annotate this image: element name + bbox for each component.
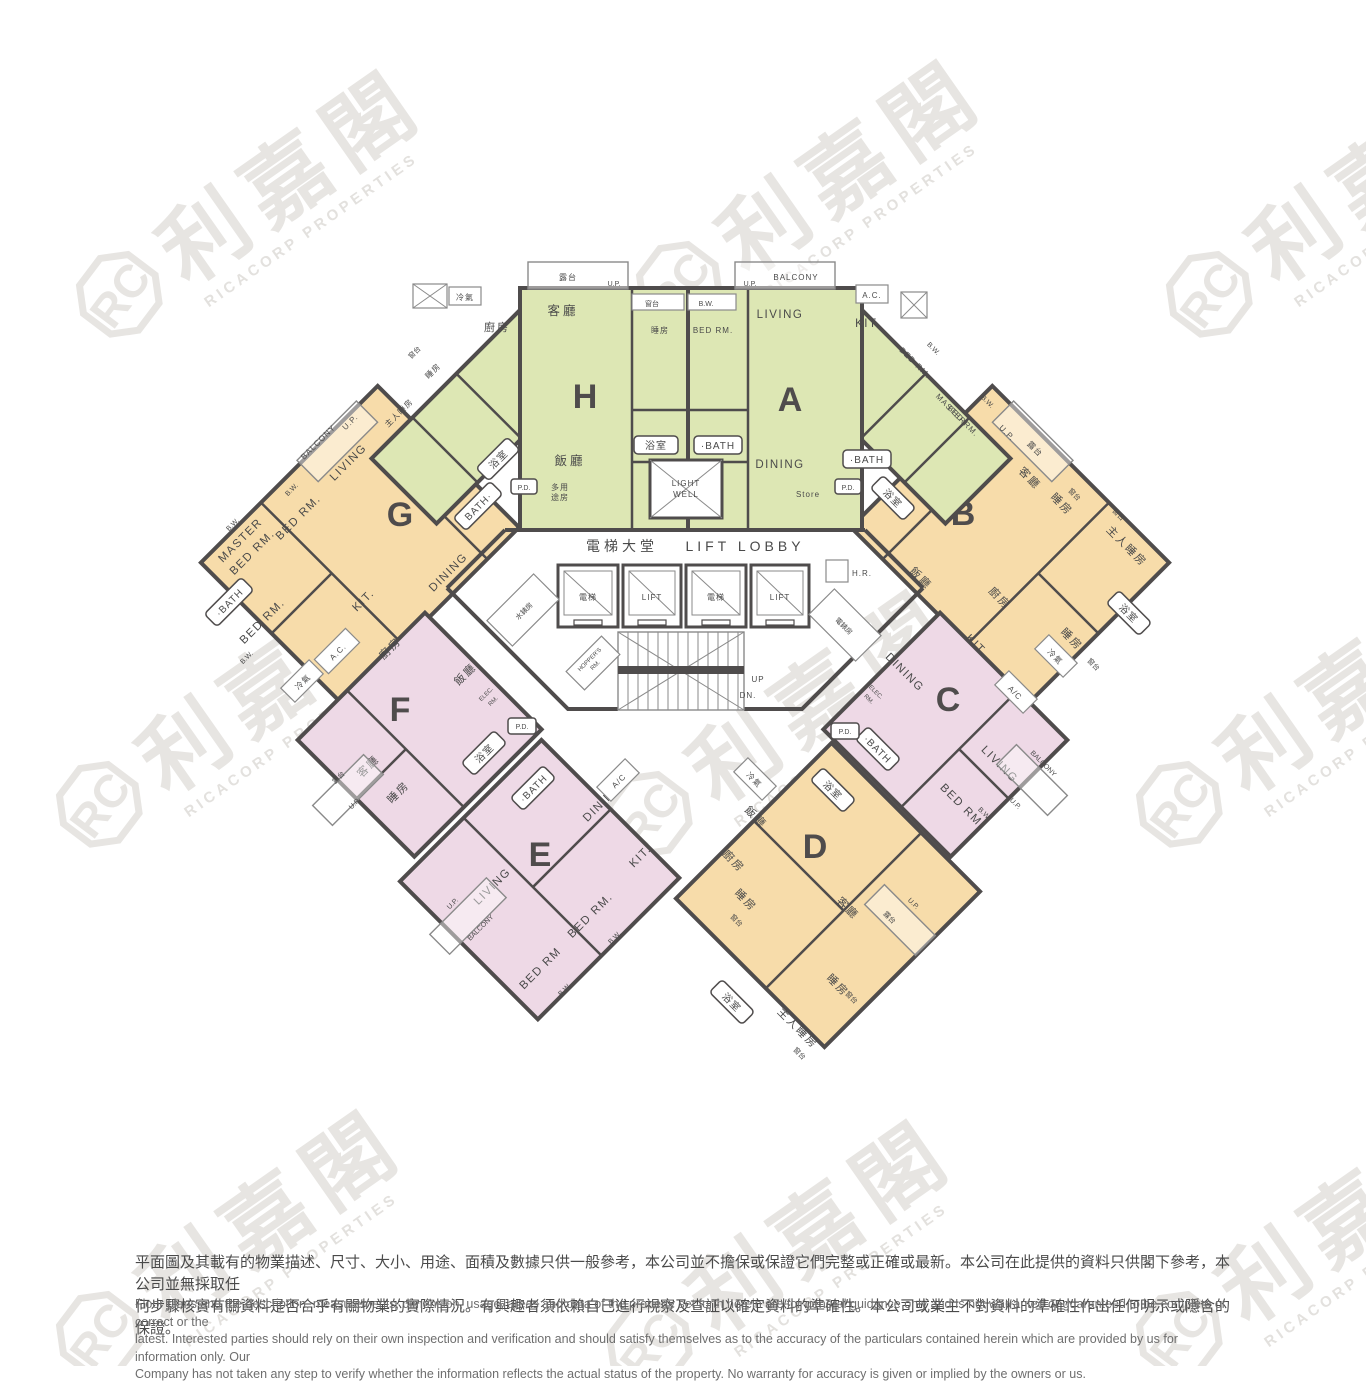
disclaimer-zh-line1: 平面圖及其載有的物業描述、尺寸、大小、用途、面積及數據只供一般參考，本公司並不擔…: [135, 1252, 1240, 1296]
lift-lobby-label-en: LIFT LOBBY: [685, 538, 804, 554]
lift-2: LIFT: [623, 565, 681, 627]
unit-a-store-label: Store: [796, 490, 820, 499]
unit-h-wing-bedroom-label: 睡房: [423, 361, 443, 381]
unit-h-multi-label-1: 多用: [551, 482, 569, 492]
floorplan-page: { "watermark": { "monogram": "RC", "cjk"…: [0, 0, 1366, 1366]
unit-c-up-label: U.P.: [1008, 797, 1022, 811]
unit-c-pd-pill: P.D.: [831, 723, 859, 739]
watermark: [54, 50, 452, 375]
unit-a-bath-label: ·BATH: [701, 441, 735, 452]
light-well-label-2: WELL: [673, 490, 699, 499]
unit-h-balcony-label: 露台: [559, 272, 577, 282]
unit-h-bay-label: 窗台: [406, 344, 422, 360]
unit-h-bedroom-label: 睡房: [651, 325, 669, 335]
unit-h-up-label: U.P.: [608, 281, 621, 288]
disclaimer-en-line3: Company has not taken any step to verify…: [135, 1366, 1240, 1384]
center-bay-label: 窗台: [645, 299, 659, 308]
unit-f-pd-pill: P.D.: [508, 718, 536, 734]
unit-h-pd-pill: P.D.: [511, 479, 537, 494]
unit-a-pd-label: P.D.: [842, 485, 855, 492]
unit-d-bay3-label: 窗台: [792, 1045, 808, 1061]
unit-a-bath-pill: ·BATH: [694, 436, 742, 454]
disclaimer-en-line1: Floor plans and the description, measure…: [135, 1296, 1240, 1331]
unit-c-pd-label: P.D.: [839, 729, 852, 736]
unit-a-bath2-label: ·BATH: [850, 455, 884, 466]
floorplan-canvas: RC 利嘉閣 RICACORP PROPERTIES BALCONY U.P. …: [0, 0, 1366, 1366]
unit-a-balcony-label: BALCONY: [773, 273, 818, 282]
watermark: [1144, 50, 1366, 375]
stairs-dn2-label: DN.: [740, 691, 757, 700]
unit-h-letter: H: [573, 378, 598, 416]
unit-h-dining-label: 飯廳: [554, 453, 585, 468]
unit-a-bath2-pill: ·BATH: [843, 450, 891, 468]
hose-reel: H.R.: [826, 560, 872, 582]
unit-a-kitchen-label: KIT.: [855, 318, 881, 330]
unit-h-bath-label: 浴室: [645, 439, 667, 452]
disclaimer-en-line2: latest. Interested parties should rely o…: [135, 1331, 1240, 1366]
lift-1-label: 電梯: [579, 592, 597, 602]
lift-3-label: 電梯: [707, 592, 725, 602]
unit-a-bedroom-label: BED RM.: [693, 326, 733, 335]
unit-b-bay3-label: 窗台: [1086, 656, 1102, 672]
lift-lobby-label-cjk: 電梯大堂: [586, 538, 658, 554]
unit-h-living-label: 客廳: [547, 303, 578, 318]
center-bay-strip: 窗台 B.W.: [632, 294, 736, 310]
unit-c-letter: C: [936, 681, 961, 719]
unit-f-letter: F: [390, 691, 411, 729]
water-meter-room: 水錶房: [487, 574, 559, 646]
unit-h-bath-pill: 浴室: [634, 436, 678, 454]
disclaimer-english: Floor plans and the description, measure…: [135, 1296, 1240, 1384]
unit-a-bw-label: B.W.: [925, 341, 940, 356]
unit-h-cold-label: 冷氣: [456, 292, 474, 302]
unit-a-pd-pill: P.D.: [835, 479, 861, 494]
unit-f-pd-label: P.D.: [516, 724, 529, 731]
watermark: [1114, 560, 1366, 885]
lift-2-label: LIFT: [642, 593, 662, 602]
light-well-label-1: LIGHT: [672, 479, 701, 488]
stairs-up2-label: UP: [751, 675, 764, 684]
unit-d-letter: D: [803, 828, 828, 866]
unit-a-living-label: LIVING: [757, 309, 804, 321]
unit-a-dining-label: DINING: [755, 459, 804, 471]
lift-3: 電梯: [686, 565, 746, 627]
hr-label: H.R.: [852, 569, 872, 578]
light-well: LIGHT WELL: [650, 460, 722, 518]
lift-4-label: LIFT: [770, 593, 790, 602]
stairs: [618, 632, 744, 710]
center-bw-label: B.W.: [699, 301, 714, 308]
unit-h-multi-label-2: 途房: [551, 492, 569, 502]
unit-g-letter: G: [387, 496, 413, 534]
unit-h-kitchen-label: 廚房: [484, 320, 510, 334]
unit-a-ac-label: A.C.: [862, 291, 882, 300]
unit-d-bath-pill: 浴室: [709, 979, 754, 1024]
unit-e-letter: E: [529, 836, 552, 874]
lift-4: LIFT: [751, 565, 809, 627]
lift-1: 電梯: [558, 565, 618, 627]
unit-a-letter: A: [778, 381, 803, 419]
unit-a-up-label: U.P.: [744, 281, 757, 288]
unit-h-pd-label: P.D.: [518, 485, 531, 492]
unit-h-ac-box: 冷氣: [413, 284, 481, 308]
